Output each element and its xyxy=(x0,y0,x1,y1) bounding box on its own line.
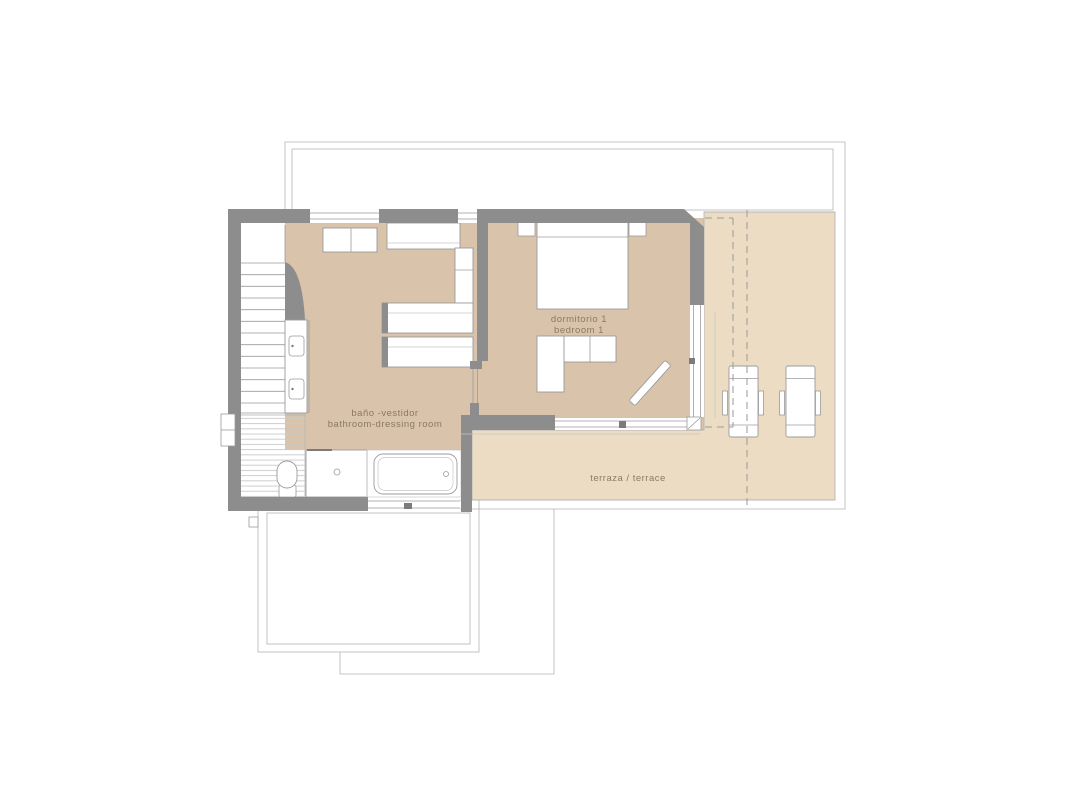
roof-dotted-square-bottom xyxy=(267,513,470,644)
wardrobe-island-2 xyxy=(382,337,473,367)
window-top-2 xyxy=(458,209,477,223)
roof-block-bottom xyxy=(258,500,479,652)
seat-chaise xyxy=(537,336,564,392)
lounger-2-armrest-left xyxy=(780,391,785,415)
sink-2 xyxy=(289,379,304,399)
floorplan-drawing: baño -vestidor bathroom-dressing room do… xyxy=(0,0,1067,800)
sink-1 xyxy=(289,336,304,356)
roof-dotted-strip-top xyxy=(292,149,833,210)
lounger-1-armrest-left xyxy=(723,391,728,415)
island-2-end xyxy=(382,337,388,367)
faucet-1 xyxy=(291,345,293,347)
terrace-label: terraza / terrace xyxy=(590,473,666,484)
window-top-1 xyxy=(307,209,382,223)
wardrobe-top xyxy=(387,223,460,249)
faucet-2 xyxy=(291,388,293,390)
wall-top-mid xyxy=(382,209,458,223)
wall-bedroom-left xyxy=(477,223,488,361)
sun-lounger-1 xyxy=(723,366,764,437)
bedroom-label-en: bedroom 1 xyxy=(554,325,604,336)
sun-lounger-2 xyxy=(780,366,821,437)
bathroom-label-es: baño -vestidor xyxy=(351,408,418,419)
closet-top-left xyxy=(323,228,377,252)
vanity-unit xyxy=(285,320,309,413)
bedroom-label-es: dormitorio 1 xyxy=(551,314,607,325)
window-bath-bottom xyxy=(368,498,460,511)
wardrobe-island-1 xyxy=(382,303,473,333)
wall-cap xyxy=(470,361,482,369)
island-1-end xyxy=(382,303,388,333)
toilet-bowl xyxy=(277,461,297,488)
lower-floor-outline xyxy=(340,509,554,674)
wall-terrace-left xyxy=(461,415,472,512)
lounger-1-armrest-right xyxy=(759,391,764,415)
wall-jamb xyxy=(470,403,479,416)
wardrobe-column xyxy=(455,248,473,303)
nightstand-right xyxy=(629,222,646,236)
bathroom-label-en: bathroom-dressing room xyxy=(328,419,443,430)
lounger-2-armrest-right xyxy=(816,391,821,415)
floorplan-page: baño -vestidor bathroom-dressing room do… xyxy=(0,0,1067,800)
wall-bedroom-bottom xyxy=(461,415,555,430)
wall-bottom-bath xyxy=(228,497,368,511)
roof-edge-notch xyxy=(249,517,258,527)
bathtub-drain xyxy=(444,472,449,477)
nightstand-left xyxy=(518,222,535,236)
stairwell xyxy=(240,223,285,413)
bed xyxy=(537,222,628,309)
wet-deck-stripes xyxy=(240,415,305,497)
shower-drain xyxy=(334,469,340,475)
wall-left xyxy=(228,209,241,511)
